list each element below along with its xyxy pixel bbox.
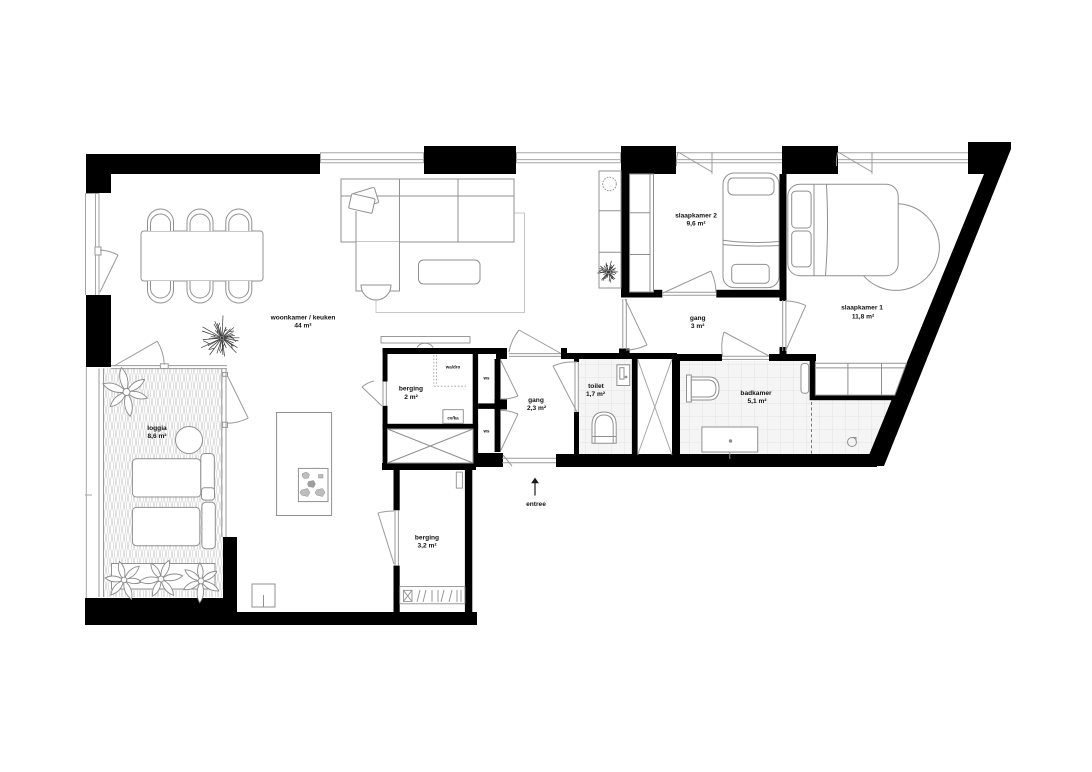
svg-text:berging: berging [415, 535, 439, 542]
svg-text:slaapkamer 2: slaapkamer 2 [675, 213, 717, 220]
svg-text:2 m²: 2 m² [404, 394, 418, 401]
svg-text:11,8 m²: 11,8 m² [852, 314, 875, 321]
svg-text:slaapkamer 1: slaapkamer 1 [841, 305, 883, 312]
svg-text:gang: gang [690, 315, 706, 322]
svg-text:toilet: toilet [588, 383, 605, 390]
svg-text:berging: berging [399, 386, 423, 393]
svg-text:woonkamer / keuken: woonkamer / keuken [270, 315, 336, 322]
svg-text:ws: ws [482, 376, 490, 381]
svg-text:cv/ka: cv/ka [447, 416, 459, 421]
svg-text:badkamer: badkamer [740, 390, 772, 397]
svg-text:3 m²: 3 m² [691, 323, 705, 330]
svg-text:entree: entree [526, 501, 546, 508]
svg-text:1,7 m²: 1,7 m² [586, 391, 606, 398]
svg-text:5,1 m²: 5,1 m² [747, 398, 767, 405]
svg-text:ws: ws [482, 429, 490, 434]
svg-text:gang: gang [528, 397, 544, 404]
svg-text:loggia: loggia [147, 425, 167, 432]
svg-text:3,2 m²: 3,2 m² [417, 543, 437, 550]
svg-text:2,3 m²: 2,3 m² [527, 405, 547, 412]
svg-text:44 m²: 44 m² [294, 323, 312, 330]
svg-text:9,6 m²: 9,6 m² [686, 221, 706, 228]
svg-text:8,6 m²: 8,6 m² [147, 433, 167, 440]
svg-text:wa/dro: wa/dro [445, 365, 461, 370]
